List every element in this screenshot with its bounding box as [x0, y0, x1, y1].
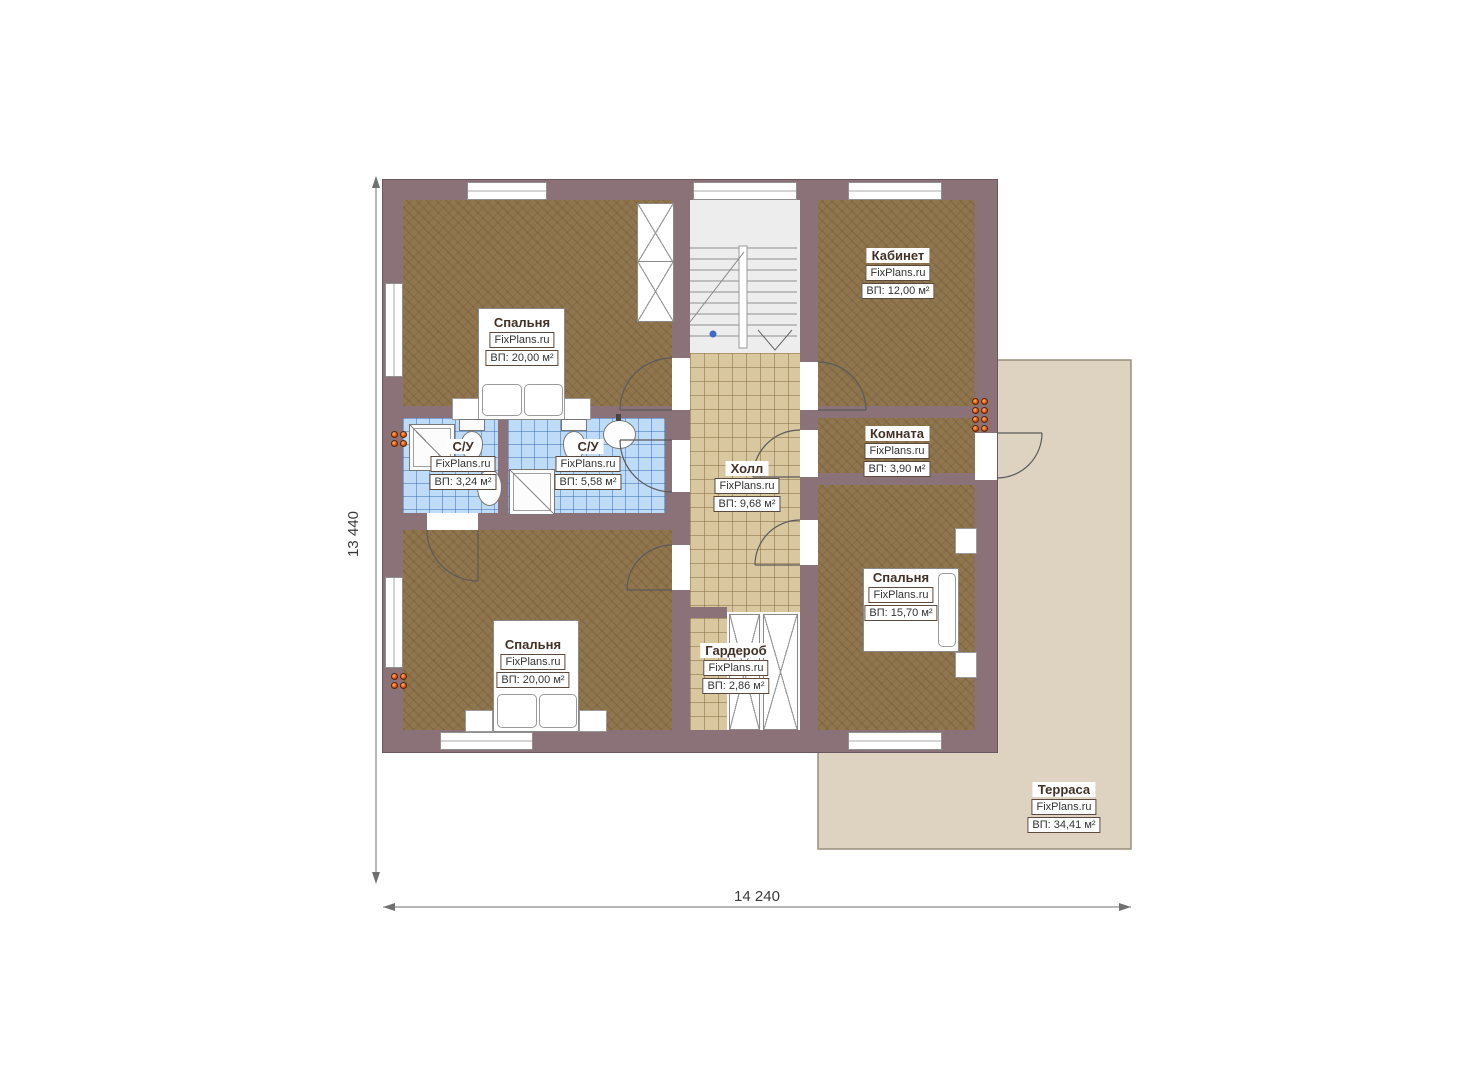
door-gap-office [800, 362, 818, 410]
room-label-bedroom-right: Спальня FixPlans.ru ВП: 15,70 м² [864, 570, 937, 621]
wall-stub-garderob [690, 607, 727, 618]
brand-watermark: FixPlans.ru [430, 456, 495, 472]
pillow-icon [497, 694, 537, 728]
room-area: ВП: 34,41 м² [1027, 817, 1100, 833]
door-gap-bathroom-large [672, 440, 690, 492]
nightstand-icon [955, 652, 977, 678]
radiator-icon [391, 431, 407, 447]
nightstand-icon [579, 710, 607, 732]
radiator-icon [391, 673, 407, 689]
pillow-icon [539, 694, 577, 728]
door-gap-bedroom-right [800, 520, 818, 565]
room-name: Спальня [500, 637, 566, 652]
room-name: С/У [572, 439, 603, 454]
room-label-bedroom-top-left: Спальня FixPlans.ru ВП: 20,00 м² [485, 315, 558, 366]
pillow-icon [524, 384, 563, 416]
room-label-hall: Холл FixPlans.ru ВП: 9,68 м² [713, 461, 780, 512]
room-label-bedroom-bottom-left: Спальня FixPlans.ru ВП: 20,00 м² [496, 637, 569, 688]
brand-watermark: FixPlans.ru [703, 660, 768, 676]
room-label-garderob: Гардероб FixPlans.ru ВП: 2,86 м² [700, 643, 771, 694]
brand-watermark: FixPlans.ru [864, 443, 929, 459]
tap-icon [616, 414, 621, 421]
brand-watermark: FixPlans.ru [1031, 799, 1096, 815]
room-area: ВП: 3,24 м² [429, 474, 496, 490]
pillow-icon [482, 384, 522, 416]
room-label-office: Кабинет FixPlans.ru ВП: 12,00 м² [861, 248, 934, 299]
window-bottom-bedroom [440, 732, 533, 750]
room-label-bathroom-large: С/У FixPlans.ru ВП: 5,58 м² [554, 439, 621, 490]
window-stairwell [693, 182, 797, 200]
window-top-bedroom [467, 182, 547, 200]
door-gap-komnata [800, 430, 818, 477]
door-gap-terrace [975, 433, 997, 480]
room-area: ВП: 2,86 м² [702, 678, 769, 694]
radiator-icon [972, 398, 988, 432]
brand-watermark: FixPlans.ru [500, 654, 565, 670]
nightstand-icon [452, 398, 479, 420]
brand-watermark: FixPlans.ru [865, 265, 930, 281]
window-left-lower [385, 577, 403, 668]
window-bottom-right-bedroom [848, 732, 942, 750]
room-area: ВП: 9,68 м² [713, 496, 780, 512]
pillow-icon [938, 573, 956, 647]
room-area: ВП: 12,00 м² [861, 283, 934, 299]
wardrobe-icon [637, 203, 674, 263]
room-area: ВП: 5,58 м² [554, 474, 621, 490]
room-area: ВП: 20,00 м² [496, 672, 569, 688]
brand-watermark: FixPlans.ru [714, 478, 779, 494]
room-name: С/У [447, 439, 478, 454]
nightstand-icon [955, 528, 977, 554]
room-name: Спальня [489, 315, 555, 330]
room-label-bathroom-small: С/У FixPlans.ru ВП: 3,24 м² [429, 439, 496, 490]
room-name: Гардероб [700, 643, 771, 658]
room-label-komnata: Комната FixPlans.ru ВП: 3,90 м² [863, 426, 930, 477]
room-area: ВП: 20,00 м² [485, 350, 558, 366]
room-name: Кабинет [867, 248, 930, 263]
door-gap-bathroom-small [427, 513, 478, 530]
room-area: ВП: 15,70 м² [864, 605, 937, 621]
room-label-terrace: Терраса FixPlans.ru ВП: 34,41 м² [1027, 782, 1100, 833]
room-area: ВП: 3,90 м² [863, 461, 930, 477]
brand-watermark: FixPlans.ru [868, 587, 933, 603]
brand-watermark: FixPlans.ru [555, 456, 620, 472]
floor-stairwell [690, 200, 800, 353]
room-name: Спальня [868, 570, 934, 585]
window-left-upper [385, 283, 403, 377]
wardrobe-icon [637, 261, 674, 322]
floor-plan-canvas: 13 440 14 240 Спальня FixPlans.ru ВП: 20… [0, 0, 1474, 1080]
nightstand-icon [564, 398, 591, 420]
nightstand-icon [465, 710, 493, 732]
brand-watermark: FixPlans.ru [489, 332, 554, 348]
window-office [848, 182, 942, 200]
room-name: Холл [726, 461, 769, 476]
door-gap-bedroom-bl [672, 545, 690, 590]
shower-icon [509, 469, 555, 515]
door-gap-bedroom-tl [672, 358, 690, 410]
floor-office [818, 200, 975, 406]
room-name: Терраса [1033, 782, 1095, 797]
room-name: Комната [865, 426, 929, 441]
